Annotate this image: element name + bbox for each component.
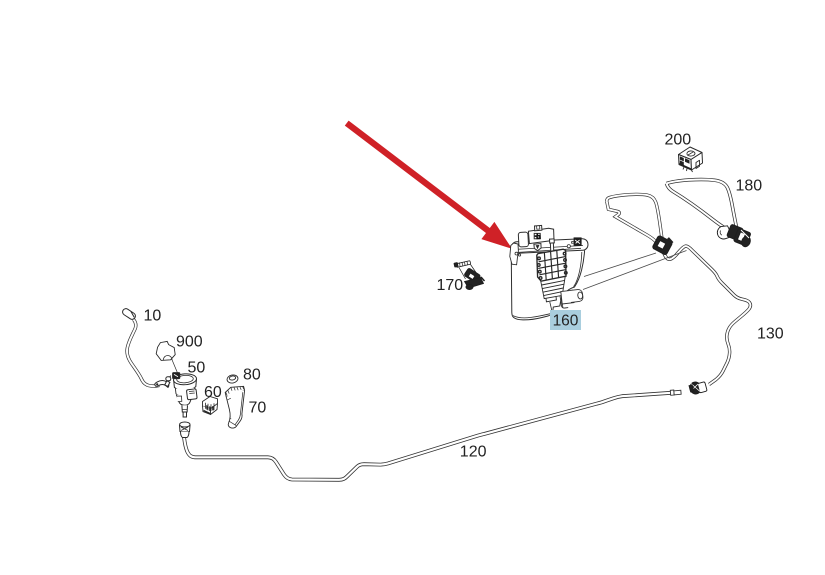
svg-text:10: 10 [144, 308, 162, 325]
svg-text:80: 80 [243, 367, 261, 384]
svg-text:130: 130 [757, 326, 784, 343]
svg-text:60: 60 [204, 384, 222, 401]
svg-text:120: 120 [460, 444, 487, 461]
svg-text:160: 160 [553, 313, 579, 330]
svg-text:50: 50 [188, 360, 206, 377]
svg-text:180: 180 [736, 178, 763, 195]
svg-text:200: 200 [665, 132, 692, 149]
svg-text:70: 70 [249, 400, 267, 417]
svg-text:900: 900 [176, 334, 203, 351]
svg-text:170: 170 [437, 277, 464, 294]
